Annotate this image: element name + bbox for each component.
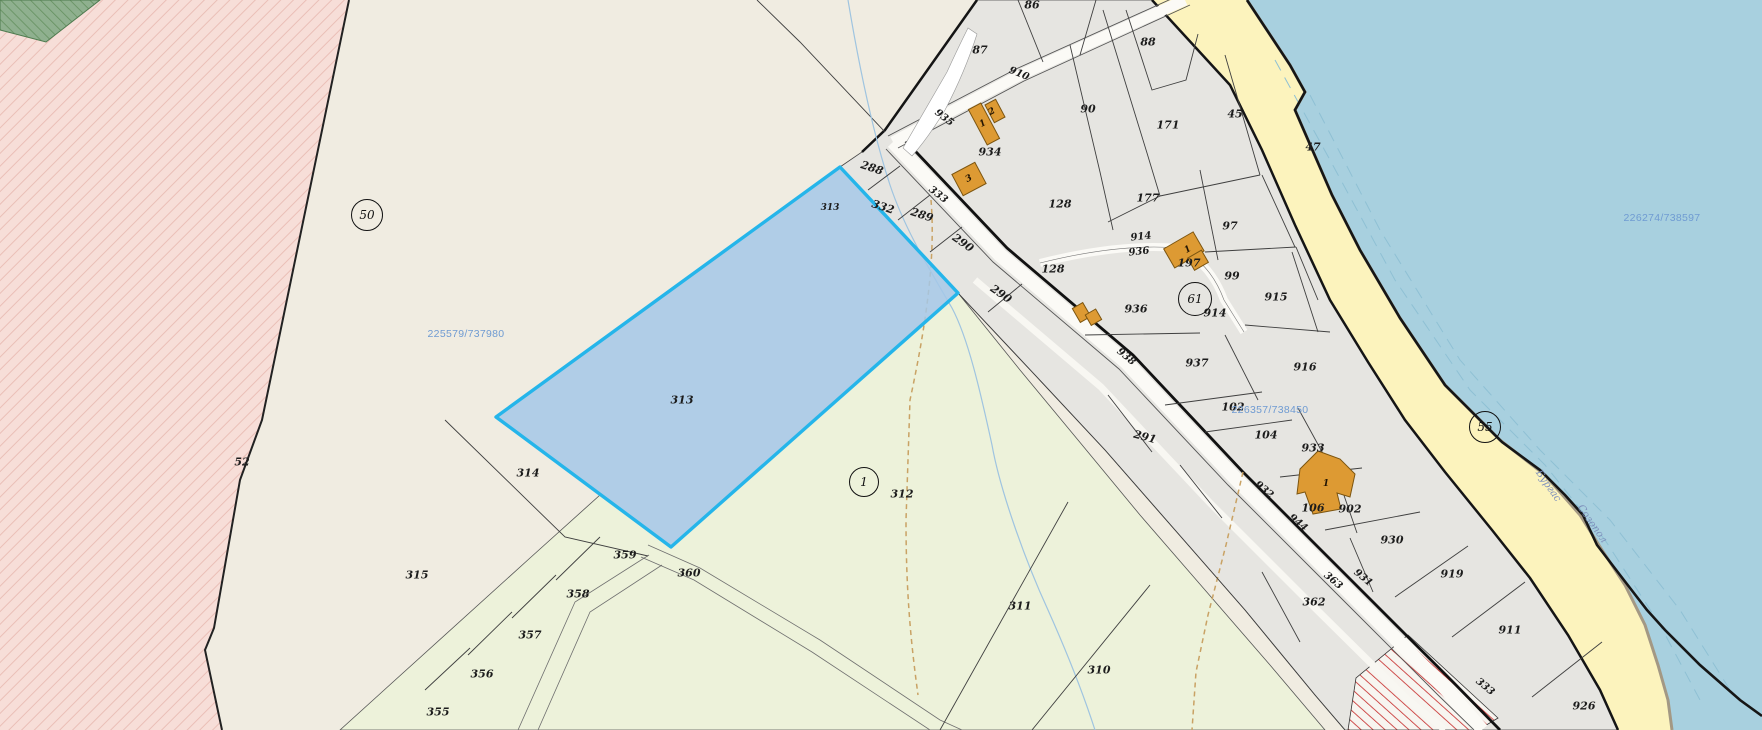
map-geometry — [0, 0, 1762, 730]
map-canvas[interactable]: 8687889017145471281779793499128197915936… — [0, 0, 1762, 730]
